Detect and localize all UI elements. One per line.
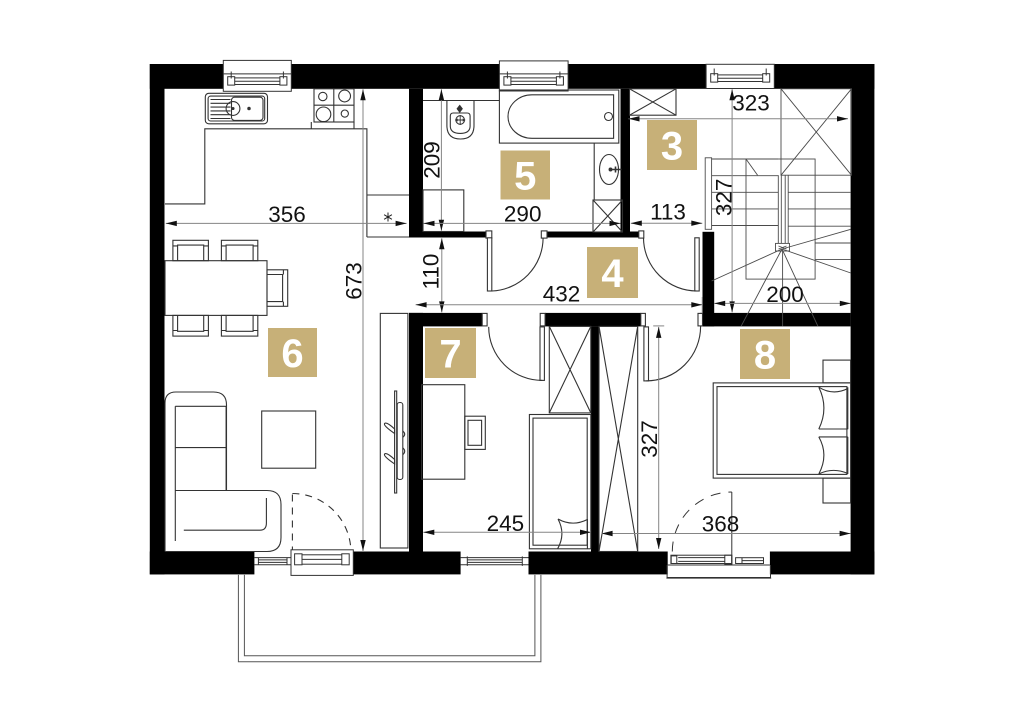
svg-text:209: 209 [420,141,445,179]
svg-text:368: 368 [702,512,740,537]
svg-text:113: 113 [650,200,686,225]
svg-text:673: 673 [341,262,366,300]
svg-text:7: 7 [439,333,461,377]
svg-text:110: 110 [419,254,444,290]
svg-text:327: 327 [711,179,736,217]
svg-text:327: 327 [637,420,662,458]
svg-text:356: 356 [268,202,306,227]
svg-text:432: 432 [543,281,581,306]
svg-text:290: 290 [504,202,542,227]
svg-text:6: 6 [281,332,303,376]
svg-text:4: 4 [601,252,624,296]
svg-text:3: 3 [661,125,683,169]
svg-text:5: 5 [514,155,536,199]
svg-text:8: 8 [754,334,776,378]
svg-text:245: 245 [487,511,525,536]
svg-text:200: 200 [766,282,804,307]
svg-text:323: 323 [732,91,770,116]
